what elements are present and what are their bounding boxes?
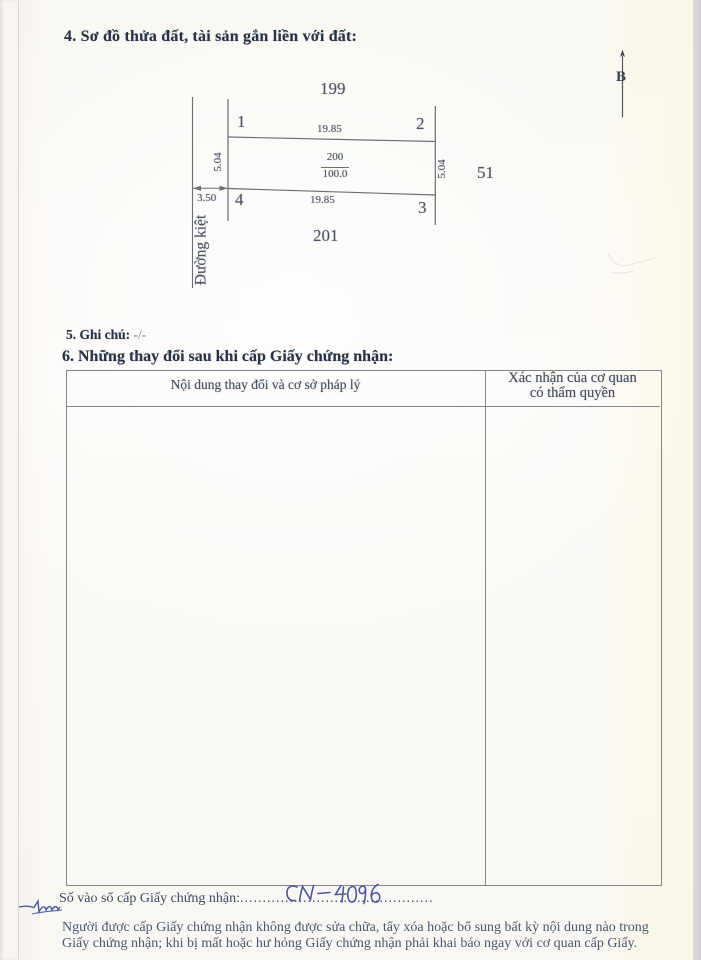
svg-text:B: B bbox=[616, 69, 626, 85]
